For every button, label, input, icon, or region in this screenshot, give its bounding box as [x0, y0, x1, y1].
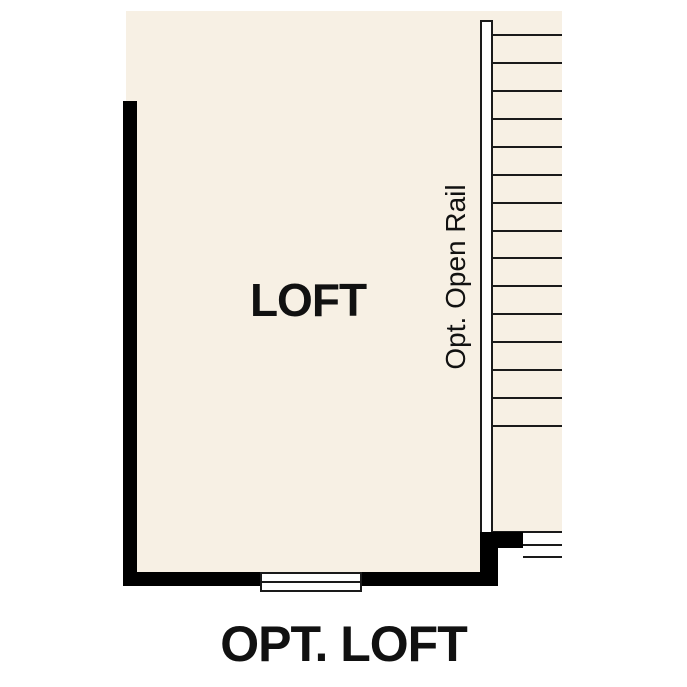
lower-tread-line	[523, 544, 562, 546]
loft-floor-area-lower	[126, 532, 480, 572]
room-label: LOFT	[250, 273, 366, 327]
wall-corner-stub-vertical	[480, 532, 498, 586]
plan-caption: OPT. LOFT	[0, 615, 687, 673]
window-symbol	[260, 572, 362, 592]
stair-lower-treads	[523, 0, 562, 600]
open-rail	[480, 20, 493, 533]
open-rail-label: Opt. Open Rail	[440, 184, 472, 369]
wall-left	[123, 101, 137, 586]
lower-tread-line	[523, 556, 562, 558]
window-midline	[262, 581, 360, 583]
floorplan-canvas: LOFT Opt. Open Rail OPT. LOFT	[0, 0, 687, 687]
